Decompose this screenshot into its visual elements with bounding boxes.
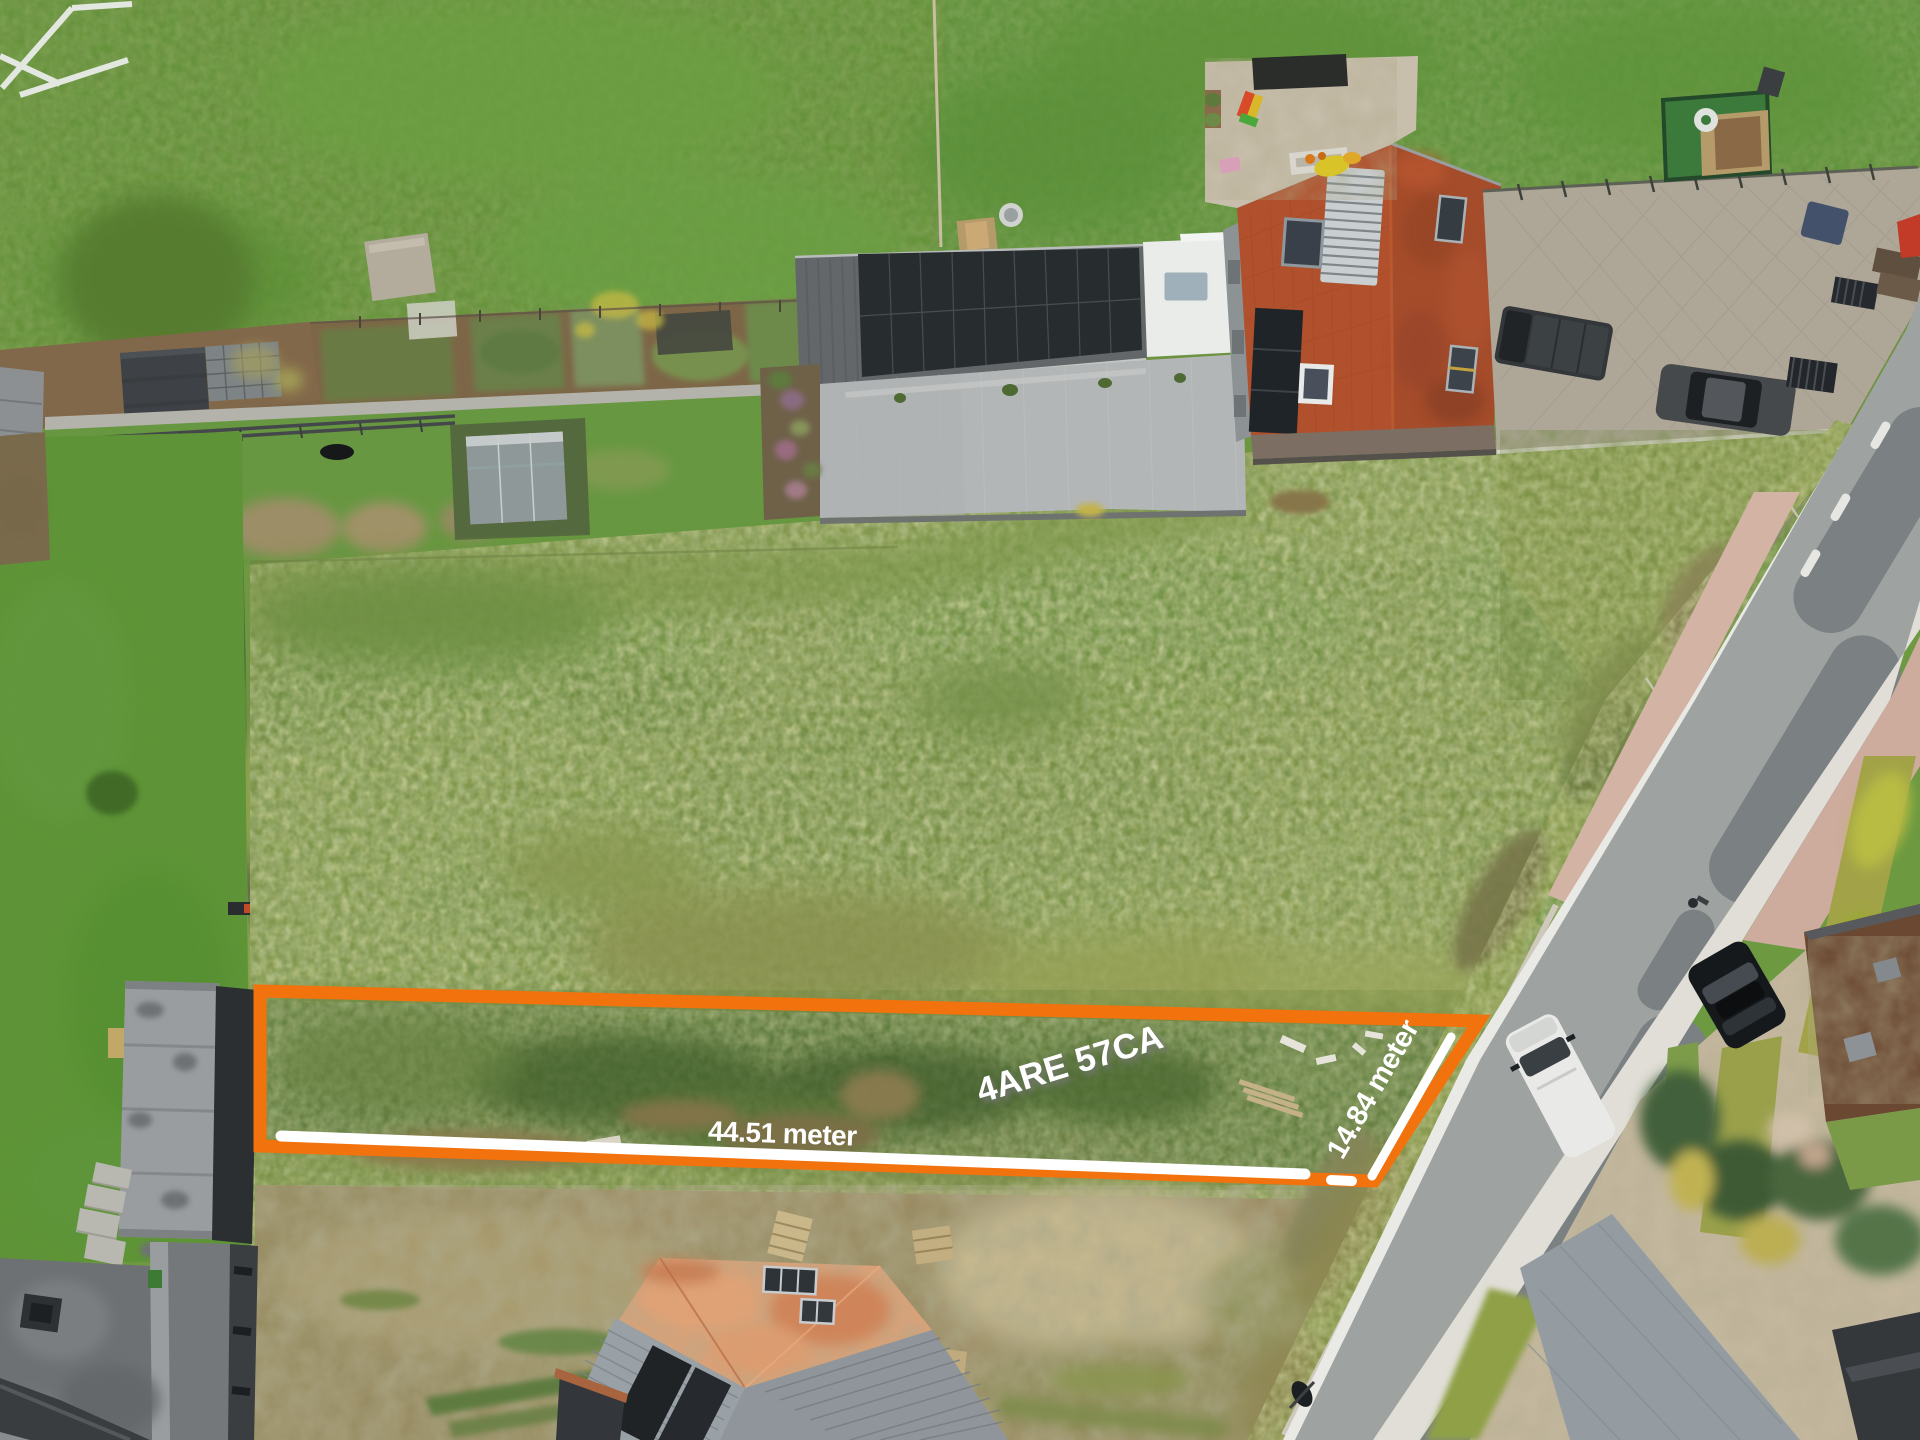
svg-text:44.51 meter: 44.51 meter [708,1115,858,1151]
